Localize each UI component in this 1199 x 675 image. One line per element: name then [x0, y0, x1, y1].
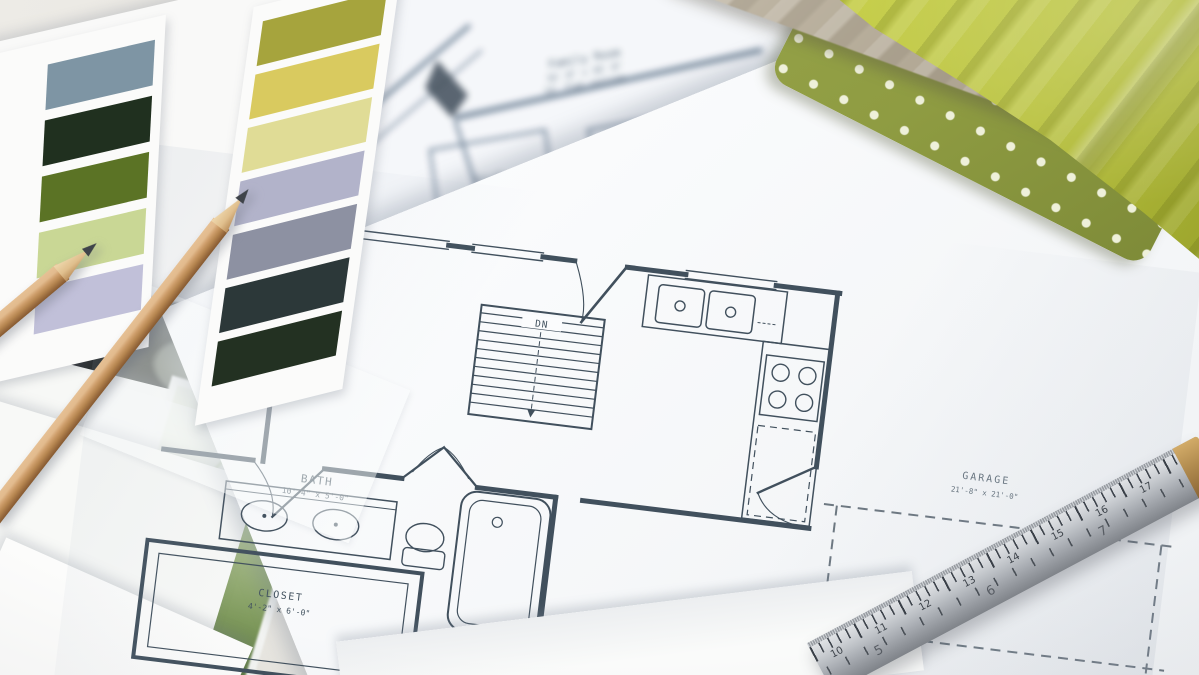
north-arrow-blur: [425, 60, 468, 118]
stairs-down-label: DN: [534, 318, 549, 331]
closet-label: CLOSET: [258, 588, 304, 604]
designer-desk-photo: Family Room 16'-0" x 18'-8" 14' flat cei…: [0, 0, 1199, 675]
kitchen: [621, 275, 838, 526]
garage-label: GARAGE: [962, 471, 1011, 488]
